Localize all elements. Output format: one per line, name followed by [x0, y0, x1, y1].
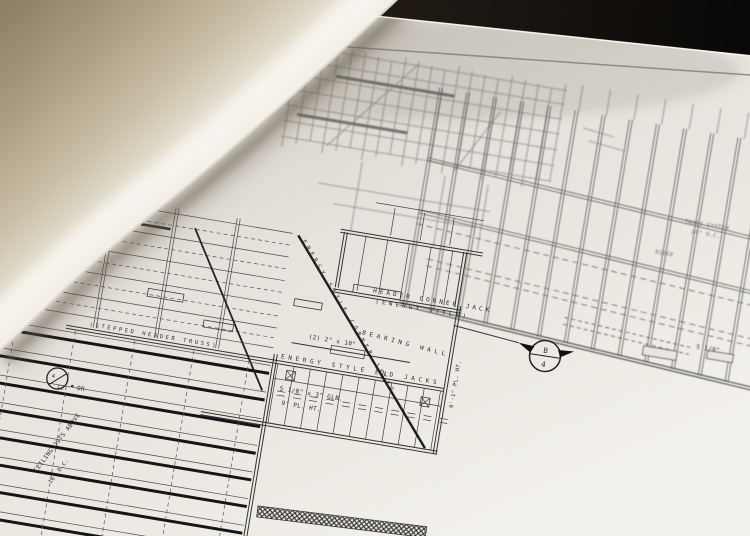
pitch-or-label: OR — [76, 385, 85, 393]
blueprint-photo: TRUSS SYSTEM 24" O.C. RIDGE 5 1/8" HEADE… — [0, 0, 750, 536]
blueprint-photo-canvas: TRUSS SYSTEM 24" O.C. RIDGE 5 1/8" HEADE… — [0, 0, 750, 536]
pitch-run-label: 12 — [56, 385, 64, 392]
